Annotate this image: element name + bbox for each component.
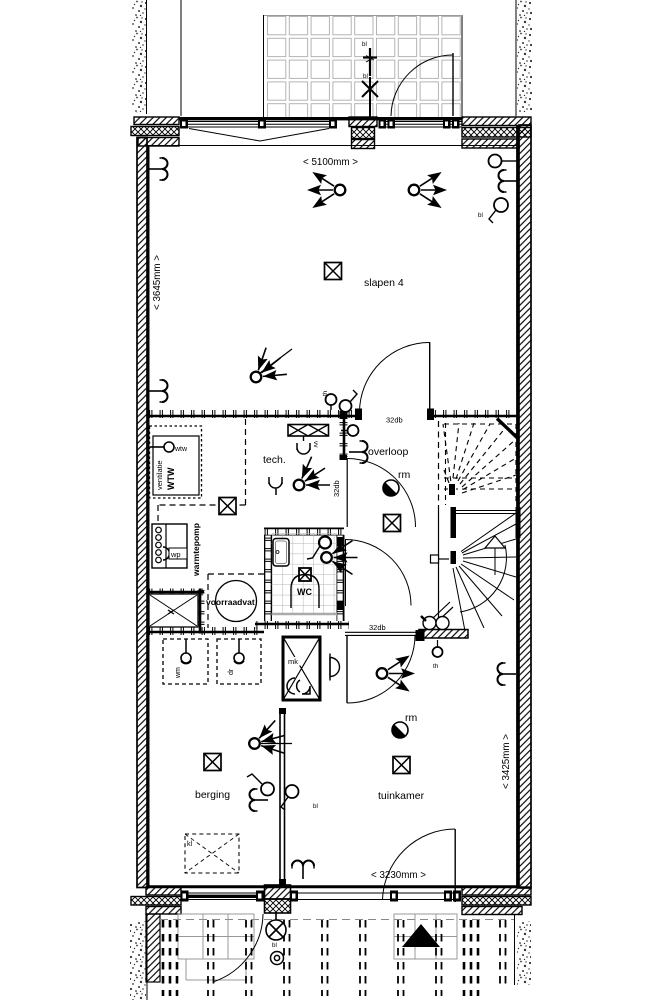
svg-text:th: th	[433, 663, 439, 670]
svg-text:vv: vv	[312, 441, 319, 448]
svg-text:dr: dr	[228, 668, 235, 675]
svg-text:32db: 32db	[332, 480, 341, 497]
svg-text:WTW: WTW	[166, 467, 176, 490]
svg-text:< 5100mm >: < 5100mm >	[303, 157, 358, 168]
svg-text:< 3425mm >: < 3425mm >	[501, 734, 512, 789]
svg-text:WC: WC	[297, 587, 312, 597]
svg-text:bl: bl	[363, 73, 368, 80]
svg-text:wp: wp	[170, 550, 181, 559]
svg-text:wtw: wtw	[174, 446, 188, 453]
svg-text:voorraadvat: voorraadvat	[206, 597, 255, 607]
svg-text:tuinkamer: tuinkamer	[378, 790, 425, 802]
svg-text:wm: wm	[175, 667, 182, 679]
svg-text:bl: bl	[272, 942, 277, 949]
svg-text:th: th	[322, 390, 329, 396]
svg-text:< 3645mm >: < 3645mm >	[152, 255, 163, 310]
svg-text:ventilatie: ventilatie	[155, 460, 164, 490]
svg-text:32db: 32db	[369, 623, 386, 632]
svg-text:bl: bl	[362, 41, 367, 48]
svg-text:overloop: overloop	[368, 446, 408, 458]
svg-text:berging: berging	[195, 789, 230, 801]
svg-text:< 3230mm >: < 3230mm >	[371, 870, 426, 881]
svg-text:tech.: tech.	[263, 454, 286, 466]
svg-text:32db: 32db	[386, 416, 403, 425]
svg-text:bl: bl	[478, 212, 483, 219]
svg-text:warmtepomp: warmtepomp	[191, 523, 201, 577]
svg-text:rm: rm	[405, 712, 417, 724]
svg-text:bl: bl	[313, 803, 318, 810]
svg-text:slapen 4: slapen 4	[364, 277, 404, 289]
svg-text:mk: mk	[288, 657, 298, 666]
svg-text:kl: kl	[187, 841, 193, 848]
svg-text:rm: rm	[398, 469, 410, 481]
